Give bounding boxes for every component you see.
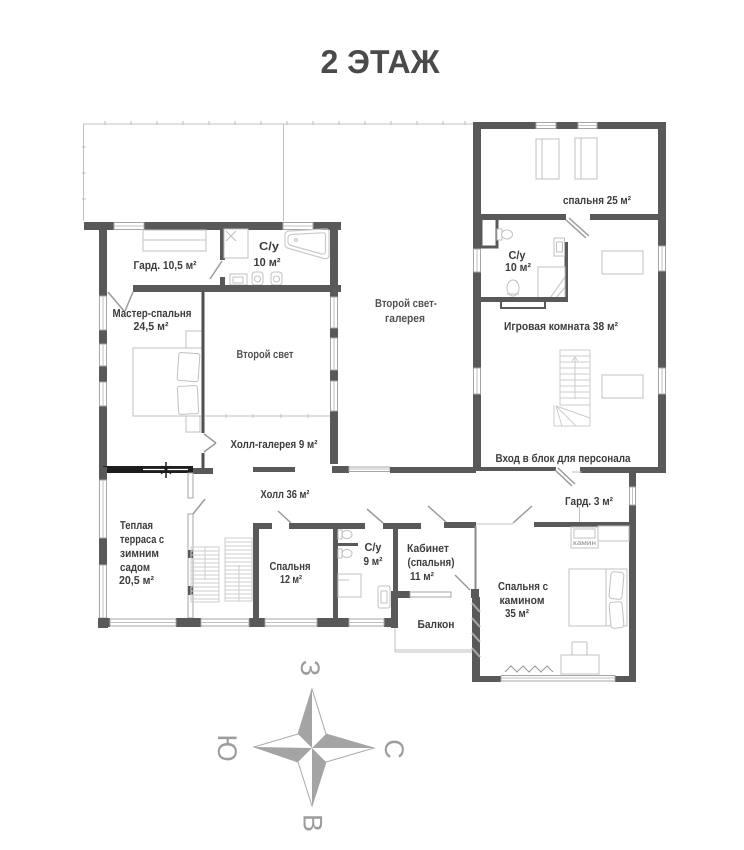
svg-text:9 м²: 9 м²	[364, 556, 383, 568]
svg-text:Спальня с: Спальня с	[498, 581, 548, 593]
svg-text:терраса с: терраса с	[120, 534, 164, 546]
svg-text:Мастер-спальня: Мастер-спальня	[113, 308, 192, 320]
svg-text:Балкон: Балкон	[418, 619, 455, 631]
svg-text:С/у: С/у	[509, 250, 527, 262]
svg-text:11 м²: 11 м²	[410, 571, 434, 583]
svg-text:Вход в блок для персонала: Вход в блок для персонала	[496, 453, 632, 465]
svg-text:20,5 м²: 20,5 м²	[119, 575, 154, 587]
svg-text:Гард. 10,5 м²: Гард. 10,5 м²	[134, 260, 197, 272]
svg-text:Второй свет-: Второй свет-	[375, 298, 437, 310]
svg-text:Холл 36 м²: Холл 36 м²	[261, 489, 310, 501]
svg-text:35 м²: 35 м²	[505, 608, 529, 620]
svg-text:Гард. 3 м²: Гард. 3 м²	[565, 496, 613, 508]
svg-text:Кабинет: Кабинет	[407, 543, 449, 555]
svg-text:З: З	[295, 660, 325, 676]
svg-text:Второй свет: Второй свет	[237, 349, 294, 361]
svg-text:камин: камин	[573, 540, 596, 547]
svg-text:(спальня): (спальня)	[408, 557, 455, 569]
svg-text:Игровая комната 38 м²: Игровая комната 38 м²	[504, 321, 618, 333]
svg-text:2 ЭТАЖ: 2 ЭТАЖ	[321, 43, 440, 80]
svg-text:Холл-галерея 9 м²: Холл-галерея 9 м²	[231, 439, 318, 451]
svg-text:Теплая: Теплая	[120, 520, 153, 532]
svg-text:С/у: С/у	[365, 542, 383, 554]
svg-text:С/у: С/у	[259, 241, 280, 253]
svg-text:Спальня: Спальня	[270, 561, 311, 573]
svg-text:галерея: галерея	[385, 313, 425, 325]
svg-text:В: В	[297, 814, 327, 832]
svg-text:12 м²: 12 м²	[280, 574, 302, 586]
svg-text:С: С	[379, 739, 409, 759]
svg-text:10 м²: 10 м²	[254, 257, 281, 269]
svg-text:садом: садом	[120, 562, 150, 574]
svg-text:камином: камином	[500, 595, 545, 607]
svg-text:Ю: Ю	[212, 734, 242, 761]
svg-text:спальня 25 м²: спальня 25 м²	[563, 195, 631, 207]
svg-text:10 м²: 10 м²	[505, 262, 531, 274]
svg-text:зимним: зимним	[120, 548, 159, 560]
svg-text:24,5 м²: 24,5 м²	[134, 321, 169, 333]
